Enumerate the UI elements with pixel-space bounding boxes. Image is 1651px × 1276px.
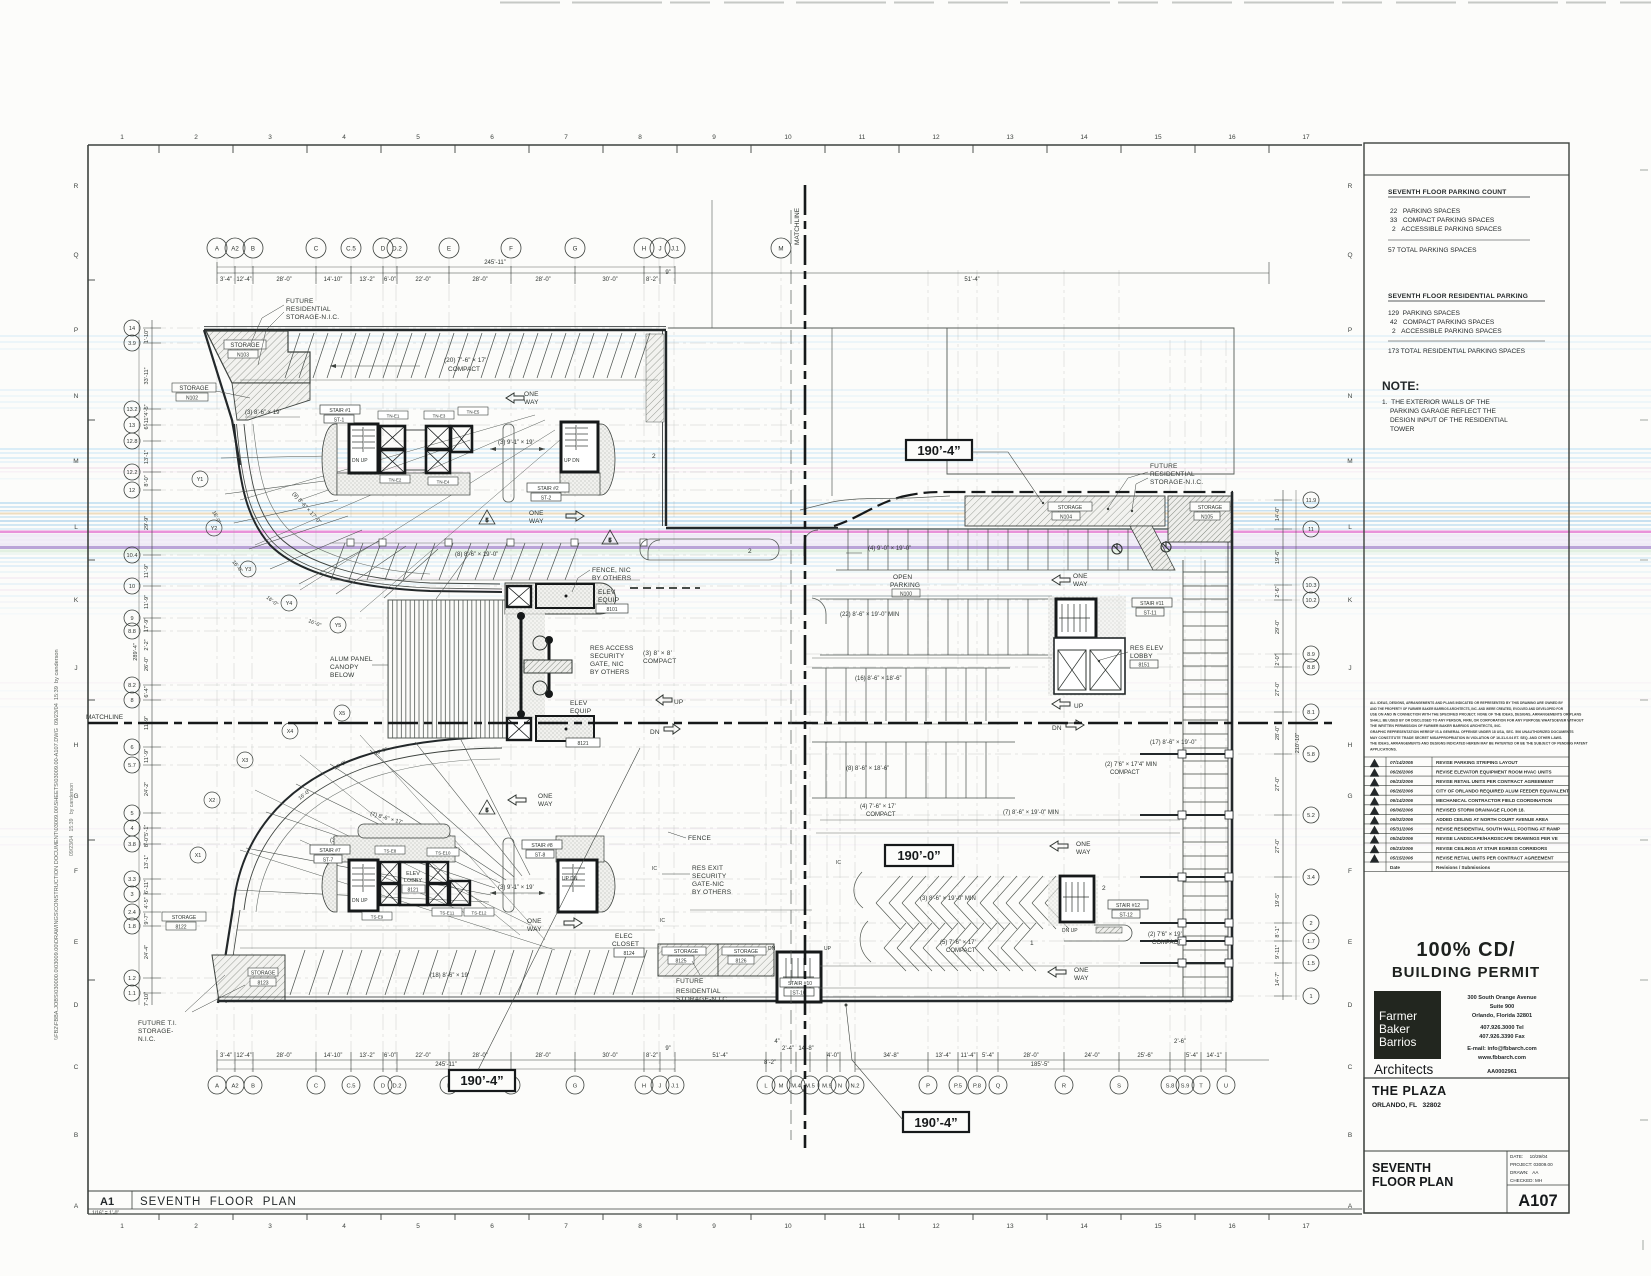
svg-text:13’-2”: 13’-2”	[359, 277, 374, 283]
svg-text:13.2: 13.2	[127, 407, 138, 413]
svg-text:8124: 8124	[623, 951, 634, 957]
svg-text:28’-0”: 28’-0”	[276, 1053, 291, 1059]
svg-text:CITY OF ORLANDO REQUIRED ALUM: CITY OF ORLANDO REQUIRED ALUM FEEDER EQU…	[1436, 788, 1569, 793]
svg-text:RESIDENTIAL: RESIDENTIAL	[676, 988, 721, 995]
svg-text:33’-11”: 33’-11”	[144, 367, 150, 384]
svg-text:RES ELEV: RES ELEV	[1130, 645, 1164, 652]
svg-text:12: 12	[932, 134, 940, 141]
svg-text:C: C	[314, 1084, 318, 1090]
svg-text:8’-0”5’-1”: 8’-0”5’-1”	[144, 825, 150, 848]
svg-text:REVISE LANDSCAPE/HARDSCAPE DRA: REVISE LANDSCAPE/HARDSCAPE DRAWINGS PER …	[1436, 836, 1558, 841]
svg-text:Farmer: Farmer	[1379, 1009, 1417, 1023]
svg-text:ST-7: ST-7	[323, 858, 334, 864]
svg-text:UP: UP	[824, 946, 832, 952]
svg-text:THE WRITTEN PERMISSION OF FARM: THE WRITTEN PERMISSION OF FARMER BAKER B…	[1370, 724, 1501, 728]
svg-text:(22) 8’-6” × 19’-0” MIN: (22) 8’-6” × 19’-0” MIN	[840, 612, 899, 618]
svg-text:14: 14	[1080, 1223, 1088, 1230]
svg-text:4’-5”: 4’-5”	[144, 897, 150, 908]
svg-text:Q: Q	[1347, 252, 1352, 259]
svg-text:ADDED CEILING AT NORTH COURT A: ADDED CEILING AT NORTH COURT AVENUE AREA	[1436, 817, 1549, 822]
svg-text:IC: IC	[652, 866, 657, 872]
svg-text:(16) 8’-6” × 18’-6”: (16) 8’-6” × 18’-6”	[855, 676, 902, 682]
svg-text:REVISE PARKING STRIPING LAYOUT: REVISE PARKING STRIPING LAYOUT	[1436, 760, 1518, 765]
svg-text:TN-E2: TN-E2	[389, 478, 402, 483]
svg-text:09/23/04 15:39 by canderso: 09/23/04 15:39 by canderson	[69, 783, 75, 856]
svg-text:H: H	[1348, 742, 1353, 749]
svg-text:245’-11”: 245’-11”	[435, 1062, 457, 1068]
svg-text:8: 8	[638, 1223, 642, 1230]
svg-text:1.7: 1.7	[1307, 939, 1315, 945]
svg-text:Orlando, Florida 32801: Orlando, Florida 32801	[1472, 1013, 1532, 1019]
svg-text:SHALL BE USED BY OR DISCLOSED: SHALL BE USED BY OR DISCLOSED TO ANY PER…	[1370, 718, 1584, 722]
svg-text:1: 1	[120, 134, 124, 141]
svg-text:DN UP: DN UP	[352, 458, 368, 464]
svg-text:X3: X3	[242, 758, 249, 764]
svg-text:STORAGE: STORAGE	[1058, 505, 1083, 511]
svg-text:2: 2	[748, 548, 752, 555]
svg-text:TS-E12: TS-E12	[472, 911, 487, 916]
svg-text:2: 2	[1309, 921, 1312, 927]
svg-text:(4) 7’-6” × 17’: (4) 7’-6” × 17’	[860, 804, 896, 810]
svg-text:A: A	[74, 1203, 79, 1210]
svg-text:SECURITY: SECURITY	[692, 873, 727, 880]
svg-text:190’-4”: 190’-4”	[914, 1115, 957, 1130]
svg-text:2’-6”: 2’-6”	[1275, 586, 1281, 597]
svg-text:B: B	[74, 1132, 78, 1139]
svg-text:A2: A2	[231, 246, 239, 253]
svg-text:5: 5	[130, 811, 133, 817]
svg-text:S.9: S.9	[1181, 1084, 1190, 1090]
svg-text:5.8: 5.8	[1307, 752, 1315, 758]
svg-text:6’-11”4’-5”: 6’-11”4’-5”	[144, 404, 150, 429]
svg-text:3’-4”: 3’-4”	[220, 277, 232, 283]
svg-text:RESIDENTIAL: RESIDENTIAL	[286, 306, 331, 313]
svg-text:8101: 8101	[606, 607, 617, 613]
svg-text:REVISE ELEVATOR EQUIPMENT ROOM: REVISE ELEVATOR EQUIPMENT ROOM HVAC UNIT…	[1436, 769, 1552, 774]
svg-text:11’-9”: 11’-9”	[144, 749, 150, 763]
svg-text:(8) 8’-6” × 18’-6”: (8) 8’-6” × 18’-6”	[846, 766, 889, 772]
svg-text:SEVENTH FLOOR PARKING COUNT: SEVENTH FLOOR PARKING COUNT	[1388, 189, 1506, 196]
svg-text:6: 6	[130, 745, 133, 751]
svg-text:7: 7	[564, 134, 568, 141]
svg-text:B: B	[251, 1084, 255, 1090]
svg-text:11: 11	[1308, 527, 1314, 533]
svg-text:ONE: ONE	[538, 793, 553, 800]
svg-text:1.8: 1.8	[128, 924, 136, 930]
svg-text:29’-9”: 29’-9”	[144, 516, 150, 530]
svg-text:SEVENTH FLOOR PLAN: SEVENTH FLOOR PLAN	[140, 1196, 297, 1208]
svg-text:22 PARKING SPACES: 22 PARKING SPACES	[1390, 208, 1461, 215]
svg-text:8121: 8121	[407, 888, 418, 894]
svg-text:14’-10”: 14’-10”	[324, 277, 343, 283]
svg-text:N: N	[1348, 393, 1353, 400]
svg-text:STORAGE-N.I.C.: STORAGE-N.I.C.	[1150, 479, 1203, 486]
svg-text:D.2: D.2	[392, 246, 402, 253]
svg-text:APPLICATIONS.: APPLICATIONS.	[1370, 747, 1397, 751]
svg-text:SECURITY: SECURITY	[590, 653, 625, 660]
svg-text:ONE: ONE	[1073, 573, 1088, 580]
svg-text:11.9: 11.9	[1306, 498, 1316, 504]
svg-text:Y1: Y1	[197, 477, 204, 483]
svg-text:289’-4”: 289’-4”	[133, 643, 139, 661]
svg-text:10: 10	[129, 584, 135, 590]
svg-text:11’-9”: 11’-9”	[144, 595, 150, 609]
svg-text:2 ACCESSIBLE PARKING SPACES: 2 ACCESSIBLE PARKING SPACES	[1392, 328, 1502, 335]
svg-text:STAIR #1: STAIR #1	[329, 408, 351, 414]
svg-text:STAIR #2: STAIR #2	[537, 486, 559, 492]
svg-text:(4) 9’-0” × 19’-0”: (4) 9’-0” × 19’-0”	[868, 546, 911, 552]
svg-text:12’-4”: 12’-4”	[236, 277, 251, 283]
svg-text:F: F	[509, 246, 513, 253]
svg-text:USE ON AND IN CONNECTION WITH: USE ON AND IN CONNECTION WITH THE SPECIF…	[1370, 713, 1582, 717]
svg-text:8151: 8151	[1138, 663, 1149, 669]
svg-text:REVISE CEILINGS AT STAIR EGRES: REVISE CEILINGS AT STAIR EGRESS CORRIDOR…	[1436, 846, 1547, 851]
svg-text:EQUIP: EQUIP	[598, 597, 619, 604]
svg-text:COMPACT: COMPACT	[643, 658, 676, 665]
svg-text:P.5: P.5	[954, 1084, 962, 1090]
svg-text:Y4: Y4	[286, 601, 293, 607]
svg-text:STAIR #12: STAIR #12	[1116, 903, 1140, 909]
svg-text:NOTE:: NOTE:	[1382, 379, 1419, 393]
svg-text:22’-0”: 22’-0”	[415, 1053, 430, 1059]
svg-text:05/15/2006: 05/15/2006	[1390, 855, 1413, 860]
svg-text:J: J	[74, 665, 77, 672]
svg-text:10: 10	[784, 1223, 792, 1230]
svg-text:06/02/2006: 06/02/2006	[1390, 817, 1413, 822]
svg-text:8121: 8121	[577, 741, 588, 747]
svg-text:(3) 8’-6” × 19’: (3) 8’-6” × 19’	[245, 410, 281, 416]
svg-text:8125: 8125	[675, 959, 686, 965]
svg-text:THE PLAZA: THE PLAZA	[1372, 1084, 1447, 1098]
svg-text:BY OTHERS: BY OTHERS	[692, 889, 732, 896]
svg-text:FENCE, NIC: FENCE, NIC	[592, 567, 631, 574]
svg-text:GRAPHIC REPRESENTATION HEREOF: GRAPHIC REPRESENTATION HEREOF IS A GENER…	[1370, 730, 1574, 734]
svg-text:STORAGE: STORAGE	[179, 386, 208, 392]
svg-text:A107: A107	[1518, 1192, 1557, 1210]
svg-text:DRAWN: AA: DRAWN: AA	[1510, 1170, 1539, 1175]
svg-text:CANOPY: CANOPY	[330, 664, 359, 671]
svg-text:5: 5	[416, 134, 420, 141]
svg-text:N100: N100	[900, 592, 912, 598]
svg-text:Q: Q	[73, 252, 78, 259]
svg-text:8.8: 8.8	[128, 629, 136, 635]
svg-text:ELEC: ELEC	[615, 933, 633, 940]
svg-text:28’-0”: 28’-0”	[535, 1053, 550, 1059]
svg-text:9: 9	[130, 616, 133, 622]
svg-text:F: F	[1348, 868, 1352, 875]
svg-text:24’-0”: 24’-0”	[1084, 1053, 1099, 1059]
svg-text:TS-E11: TS-E11	[440, 911, 455, 916]
svg-text:19’-6”: 19’-6”	[1275, 550, 1281, 564]
svg-text:COMPACT: COMPACT	[1110, 770, 1140, 776]
svg-text:Y5: Y5	[335, 623, 342, 629]
svg-text:www.fbbarch.com: www.fbbarch.com	[1477, 1055, 1526, 1061]
svg-text:J: J	[658, 246, 661, 253]
svg-text:3.9: 3.9	[128, 341, 136, 347]
svg-text:FENCE: FENCE	[688, 835, 711, 842]
svg-text:H: H	[642, 1084, 646, 1090]
svg-text:X5: X5	[339, 711, 346, 717]
svg-text:12.8: 12.8	[127, 439, 138, 445]
svg-text:4’-0”: 4’-0”	[827, 1053, 839, 1059]
svg-text:ST-1: ST-1	[334, 418, 345, 424]
svg-text:(2) 7’6” × 19’: (2) 7’6” × 19’	[1148, 932, 1182, 938]
svg-text:STORAGE: STORAGE	[172, 915, 197, 921]
svg-text:06/06/2006: 06/06/2006	[1390, 808, 1413, 813]
svg-text:51’-4”: 51’-4”	[712, 1053, 727, 1059]
svg-text:D: D	[74, 1002, 79, 1009]
svg-text:05/24/2006: 05/24/2006	[1390, 836, 1413, 841]
svg-text:407.926.3390 Fax: 407.926.3390 Fax	[1479, 1034, 1525, 1040]
svg-text:9’-7”: 9’-7”	[144, 913, 150, 924]
svg-text:3: 3	[268, 1223, 272, 1230]
svg-text:DN: DN	[768, 946, 776, 952]
svg-text:M.4: M.4	[791, 1084, 801, 1090]
svg-text:WAY: WAY	[527, 926, 542, 933]
svg-text:13: 13	[1006, 134, 1014, 141]
svg-text:2’-6”: 2’-6”	[1174, 1039, 1186, 1045]
svg-text:X1: X1	[195, 853, 202, 859]
svg-text:N.I.C.: N.I.C.	[138, 1036, 156, 1043]
svg-text:P: P	[926, 1084, 930, 1090]
svg-text:C: C	[74, 1064, 79, 1071]
svg-text:Baker: Baker	[1379, 1022, 1410, 1036]
svg-text:ONE: ONE	[1074, 967, 1089, 974]
svg-text:L: L	[74, 524, 78, 531]
svg-text:STORAGE: STORAGE	[1198, 505, 1223, 511]
svg-text:DESIGN INPUT OF THE RESIDENTIA: DESIGN INPUT OF THE RESIDENTIAL	[1390, 417, 1508, 424]
svg-text:FUTURE T.I.: FUTURE T.I.	[138, 1020, 177, 1027]
svg-text:STAIR #8: STAIR #8	[531, 843, 553, 849]
svg-text:J.1: J.1	[671, 1084, 679, 1090]
svg-text:129 PARKING SPACES: 129 PARKING SPACES	[1388, 310, 1461, 317]
svg-text:COMPACT: COMPACT	[448, 366, 480, 373]
svg-text:8123: 8123	[257, 981, 268, 987]
svg-text:14’-7”: 14’-7”	[1275, 972, 1281, 986]
svg-text:245’-11”: 245’-11”	[484, 260, 506, 266]
svg-text:5: 5	[609, 538, 612, 544]
svg-text:G: G	[1347, 793, 1352, 800]
svg-text:3.3: 3.3	[128, 877, 136, 883]
svg-text:WAY: WAY	[529, 518, 544, 525]
svg-text:DN: DN	[650, 729, 660, 736]
svg-text:H: H	[642, 246, 646, 253]
svg-text:15: 15	[1154, 134, 1162, 141]
svg-text:BELOW: BELOW	[330, 672, 355, 679]
svg-text:M: M	[779, 1084, 784, 1090]
svg-text:BY OTHERS: BY OTHERS	[590, 669, 630, 676]
svg-text:28’-0”: 28’-0”	[472, 277, 487, 283]
svg-text:P: P	[74, 327, 78, 334]
svg-text:TN-E5: TN-E5	[467, 410, 480, 415]
svg-text:14’-10”: 14’-10”	[324, 1053, 343, 1059]
svg-text:10.3: 10.3	[1306, 583, 1317, 589]
svg-text:34’-8”: 34’-8”	[883, 1053, 898, 1059]
svg-text:8.8: 8.8	[1307, 665, 1315, 671]
svg-text:B: B	[1348, 1132, 1352, 1139]
svg-text:17’-9”: 17’-9”	[144, 618, 150, 632]
svg-text:5.2: 5.2	[1307, 813, 1315, 819]
svg-text:ONE: ONE	[527, 918, 542, 925]
svg-text:LOBBY: LOBBY	[404, 878, 422, 884]
svg-text:13’-1”: 13’-1”	[144, 855, 150, 869]
svg-text:TN-E1: TN-E1	[387, 414, 400, 419]
svg-text:57 TOTAL PARKING SPACES: 57 TOTAL PARKING SPACES	[1388, 247, 1477, 254]
svg-text:22’-0”: 22’-0”	[415, 277, 430, 283]
svg-text:M: M	[1347, 458, 1352, 465]
svg-text:DN UP: DN UP	[1062, 928, 1078, 934]
svg-text:26’-0”: 26’-0”	[144, 657, 150, 671]
svg-text:8.1: 8.1	[1307, 710, 1315, 716]
svg-text:TN-E4: TN-E4	[437, 480, 450, 485]
svg-text:AND THE PROPERTY OF FARMER BAK: AND THE PROPERTY OF FARMER BAKER BARRIOS…	[1370, 707, 1563, 711]
svg-text:STORAGE: STORAGE	[251, 971, 276, 977]
svg-text:4: 4	[130, 826, 133, 832]
svg-text:TS-E8: TS-E8	[384, 849, 397, 854]
svg-text:2: 2	[652, 453, 656, 460]
svg-text:14’-1”: 14’-1”	[1206, 1053, 1221, 1059]
svg-text:A1: A1	[100, 1196, 114, 1208]
svg-text:N: N	[74, 393, 79, 400]
svg-text:A: A	[215, 1084, 219, 1090]
svg-text:28’-0”: 28’-0”	[1023, 1053, 1038, 1059]
svg-text:C.5: C.5	[346, 1084, 355, 1090]
svg-text:D: D	[381, 246, 386, 253]
svg-text:G: G	[573, 246, 578, 253]
svg-text:1.2: 1.2	[128, 976, 136, 982]
svg-text:5: 5	[416, 1223, 420, 1230]
svg-text:(8) 8’-6” × 19’-0”: (8) 8’-6” × 19’-0”	[455, 552, 498, 558]
svg-text:28’-0”: 28’-0”	[276, 277, 291, 283]
svg-text:14: 14	[129, 326, 135, 332]
svg-text:Q: Q	[996, 1084, 1001, 1090]
svg-text:LOBBY: LOBBY	[1130, 653, 1153, 660]
svg-text:12’-4”: 12’-4”	[236, 1053, 251, 1059]
svg-text:7’-10”: 7’-10”	[144, 992, 150, 1006]
svg-text:17: 17	[1302, 1223, 1310, 1230]
svg-text:UP: UP	[674, 699, 683, 706]
svg-text:9”: 9”	[665, 270, 670, 276]
svg-text:5.7: 5.7	[128, 763, 136, 769]
svg-text:27’-0”: 27’-0”	[1275, 682, 1281, 696]
svg-text:6: 6	[490, 134, 494, 141]
svg-text:J.1: J.1	[671, 246, 680, 253]
svg-text:ELEV: ELEV	[598, 589, 616, 596]
svg-text:1/16” = 1’-0”: 1/16” = 1’-0”	[92, 1211, 119, 1217]
svg-text:D.2: D.2	[392, 1084, 401, 1090]
svg-text:FUTURE: FUTURE	[286, 298, 314, 305]
svg-text:13: 13	[129, 423, 135, 429]
svg-text:5: 5	[486, 808, 489, 814]
svg-text:11’-9”: 11’-9”	[144, 564, 150, 578]
svg-text:10.2: 10.2	[1306, 598, 1317, 604]
svg-text:STORAGE-N.I.C.: STORAGE-N.I.C.	[286, 314, 339, 321]
svg-text:ALL IDEAS, DESIGNS, ARRANGEMEN: ALL IDEAS, DESIGNS, ARRANGEMENTS AND PLA…	[1370, 701, 1564, 705]
svg-text:WAY: WAY	[524, 399, 539, 406]
svg-text:COMPACT: COMPACT	[946, 948, 976, 954]
svg-text:R: R	[74, 183, 79, 190]
svg-text:30’-0”: 30’-0”	[602, 277, 617, 283]
svg-text:Y3: Y3	[245, 567, 252, 573]
svg-text:173 TOTAL RESIDENTIAL PARKING: 173 TOTAL RESIDENTIAL PARKING SPACES	[1388, 348, 1526, 355]
svg-text:GATE-NIC: GATE-NIC	[692, 881, 724, 888]
svg-text:N104: N104	[1060, 515, 1072, 521]
svg-text:A2: A2	[231, 1084, 238, 1090]
svg-text:Revisions / Submissions: Revisions / Submissions	[1436, 865, 1491, 870]
svg-text:210’-10”: 210’-10”	[1295, 733, 1301, 754]
svg-text:9: 9	[712, 134, 716, 141]
svg-text:ELEV: ELEV	[406, 871, 420, 877]
svg-text:1: 1	[1309, 994, 1312, 1000]
svg-text:(18) 8’-6” × 19’: (18) 8’-6” × 19’	[430, 973, 469, 979]
svg-text:E-mail: info@fbbarch.com: E-mail: info@fbbarch.com	[1467, 1046, 1537, 1052]
svg-text:EQUIP: EQUIP	[570, 708, 591, 715]
svg-text:28’-0”: 28’-0”	[535, 277, 550, 283]
svg-text:J: J	[659, 1084, 662, 1090]
svg-text:U: U	[1224, 1084, 1228, 1090]
svg-text:UP DN: UP DN	[564, 458, 580, 464]
svg-text:IC: IC	[660, 918, 665, 924]
svg-text:7: 7	[564, 1223, 568, 1230]
svg-text:IC: IC	[836, 860, 841, 866]
svg-text:J: J	[1348, 665, 1351, 672]
svg-text:SEVENTH FLOOR RESIDENTIAL PARK: SEVENTH FLOOR RESIDENTIAL PARKING	[1388, 293, 1528, 300]
svg-text:M: M	[73, 458, 78, 465]
svg-text:C: C	[314, 246, 319, 253]
svg-text:1.5: 1.5	[1307, 961, 1315, 967]
svg-text:11’-4”: 11’-4”	[961, 1053, 976, 1059]
svg-text:300 South Orange Avenue: 300 South Orange Avenue	[1467, 995, 1536, 1001]
svg-text:12: 12	[129, 488, 135, 494]
svg-text:R: R	[1062, 1084, 1066, 1090]
svg-text:D: D	[1348, 1002, 1353, 1009]
svg-text:(3) 8’-6” × 19’-0” MIN: (3) 8’-6” × 19’-0” MIN	[920, 896, 976, 902]
svg-text:P: P	[1348, 327, 1352, 334]
svg-text:3: 3	[268, 134, 272, 141]
svg-text:Y2: Y2	[211, 526, 218, 532]
svg-text:B: B	[251, 246, 255, 253]
svg-text:8.2: 8.2	[128, 683, 136, 689]
svg-text:07/14/2005: 07/14/2005	[1390, 760, 1413, 765]
svg-text:6: 6	[490, 1223, 494, 1230]
svg-text:16: 16	[1228, 134, 1236, 141]
svg-text:MECHANICAL CONTRACTOR FIELD CO: MECHANICAL CONTRACTOR FIELD COORDINATION	[1436, 798, 1553, 803]
svg-text:33 COMPACT PARKING SPACES: 33 COMPACT PARKING SPACES	[1390, 217, 1495, 224]
svg-text:CHECKED: MH: CHECKED: MH	[1510, 1178, 1542, 1183]
svg-text:13’-4”: 13’-4”	[935, 1053, 950, 1059]
svg-text:REVISE RETAIL UNITS PER CONTRA: REVISE RETAIL UNITS PER CONTRACT AGREEME…	[1436, 779, 1554, 784]
svg-text:2.4: 2.4	[128, 910, 136, 916]
svg-text:\\FB2\FBBA.JOBS\030000.0\03009: \\FB2\FBBA.JOBS\030000.0\03009.00\DRAWIN…	[54, 649, 60, 1040]
svg-text:COMPACT: COMPACT	[1152, 940, 1182, 946]
svg-text:2’-4”: 2’-4”	[782, 1046, 794, 1052]
svg-text:2 ACCESSIBLE PARKING SPACES: 2 ACCESSIBLE PARKING SPACES	[1392, 226, 1502, 233]
svg-text:8’-2”: 8’-2”	[764, 1060, 776, 1066]
svg-text:STORAGE: STORAGE	[734, 949, 759, 955]
svg-text:X4: X4	[287, 729, 294, 735]
svg-text:5’-4”: 5’-4”	[1186, 1053, 1198, 1059]
svg-text:2: 2	[194, 1223, 198, 1230]
svg-text:12: 12	[932, 1223, 940, 1230]
svg-text:AA0002961: AA0002961	[1487, 1069, 1517, 1075]
svg-text:3.8: 3.8	[128, 842, 136, 848]
svg-text:19’-5”: 19’-5”	[1275, 893, 1281, 907]
svg-text:06/26/2006: 06/26/2006	[1390, 769, 1413, 774]
svg-text:MAY CONSTITUTE TRADE SECRET MI: MAY CONSTITUTE TRADE SECRET MISAPPROPRIA…	[1370, 736, 1562, 740]
svg-text:PROJECT: 03009.00: PROJECT: 03009.00	[1510, 1162, 1553, 1167]
svg-text:2: 2	[1102, 885, 1106, 892]
svg-text:2: 2	[194, 134, 198, 141]
